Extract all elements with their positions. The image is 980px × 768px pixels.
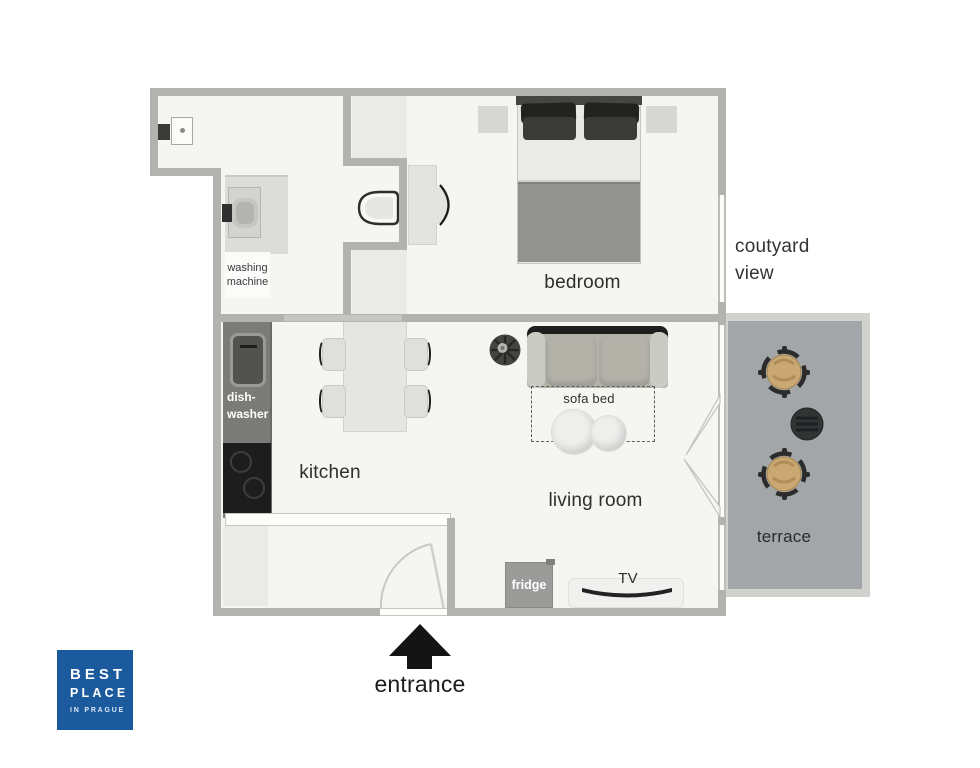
sofa-cushion-right	[599, 336, 650, 386]
nightstand-left	[478, 106, 508, 133]
washing-machine-label: washing machine	[225, 252, 270, 298]
cooktop-burner-2	[243, 477, 265, 499]
bed-sheet	[518, 140, 640, 182]
dining-chair-4	[404, 385, 428, 418]
bed-blanket	[518, 182, 640, 262]
entrance-arrow-icon	[389, 624, 451, 656]
dining-chair-1	[322, 338, 346, 371]
dishwasher-handle	[240, 345, 257, 348]
wall-corridor-upper	[343, 96, 351, 160]
bed	[516, 96, 642, 264]
best-place-logo: BEST PLACE IN PRAGUE	[57, 650, 133, 730]
dining-chair-2	[322, 385, 346, 418]
living-room-window-lower	[718, 525, 726, 590]
entry-closet-strip	[223, 526, 268, 606]
dining-chair-3	[404, 338, 428, 371]
logo-line-1: BEST	[70, 666, 133, 683]
terrace-label: terrace	[748, 527, 820, 547]
floorplan: washing machine dish- washer	[0, 0, 980, 768]
bed-pillow-right	[584, 117, 637, 140]
wall-wc-top	[343, 158, 407, 166]
chair-back-arc	[319, 340, 328, 368]
wall-left-main	[213, 168, 221, 616]
terrace-french-doors	[678, 391, 728, 521]
washing-machine-valve	[222, 204, 232, 222]
wall-top	[150, 88, 726, 96]
entrance-threshold	[380, 608, 447, 616]
tv-label: TV	[608, 570, 648, 587]
washing-machine-drum	[232, 198, 258, 228]
chair-back-arc	[319, 387, 328, 415]
bed-pillow-left	[523, 117, 576, 140]
entrance-arrow-stem	[407, 655, 432, 669]
sofa	[527, 326, 668, 390]
dishwasher	[230, 333, 266, 387]
sofa-armrest-left	[527, 332, 545, 388]
hall-sink-tap	[158, 124, 170, 140]
sofa-armrest-right	[650, 332, 668, 388]
nightstand-right	[646, 106, 677, 133]
wall-wc-bottom	[345, 242, 407, 250]
living-room-label: living room	[543, 490, 648, 512]
fridge-hinge	[546, 559, 555, 565]
wall-right-mid	[718, 302, 726, 325]
wall-entry-right	[447, 518, 455, 616]
hall-sink-drain	[180, 128, 185, 133]
entry-wardrobe	[225, 513, 451, 526]
terrace-chair-bottom	[758, 448, 810, 500]
plant	[487, 332, 523, 368]
wall-wc-right	[399, 158, 407, 250]
desk-chair	[430, 182, 460, 228]
wall-middle-opening	[284, 315, 402, 321]
wall-corridor-lower	[343, 242, 351, 320]
wall-bottom	[213, 608, 726, 616]
fridge-label: fridge	[505, 578, 553, 592]
washing-machine	[228, 187, 261, 238]
cooktop-burner-1	[230, 451, 252, 473]
wall-entry-step	[150, 168, 221, 176]
courtyard-view-label: coutyard view	[735, 233, 835, 287]
dishwasher-label: dish- washer	[227, 389, 273, 423]
kitchen-label: kitchen	[290, 462, 370, 484]
chair-back-arc	[422, 387, 431, 415]
terrace-table	[789, 406, 825, 442]
logo-line-2: PLACE	[70, 686, 133, 700]
wall-right-lower	[718, 590, 726, 616]
dining-table	[343, 316, 407, 432]
cooktop	[223, 443, 271, 513]
chair-back-arc	[422, 340, 431, 368]
entrance-label: entrance	[340, 671, 500, 698]
terrace-chair-top	[758, 346, 810, 398]
pouf-small	[590, 415, 627, 452]
logo-line-3: IN PRAGUE	[70, 707, 133, 714]
bedroom-window	[718, 195, 726, 302]
wall-left-upper	[150, 88, 158, 176]
bedroom-nook-area	[352, 250, 407, 314]
living-room-window-upper	[718, 325, 726, 395]
toilet	[354, 188, 402, 228]
sofa-cushion-left	[546, 336, 597, 386]
bedroom-label: bedroom	[515, 272, 650, 294]
wall-right-upper	[718, 88, 726, 195]
entrance-door-swing	[378, 540, 450, 614]
bedroom-closet-area	[352, 96, 407, 158]
sofa-bed-label: sofa bed	[537, 391, 641, 406]
